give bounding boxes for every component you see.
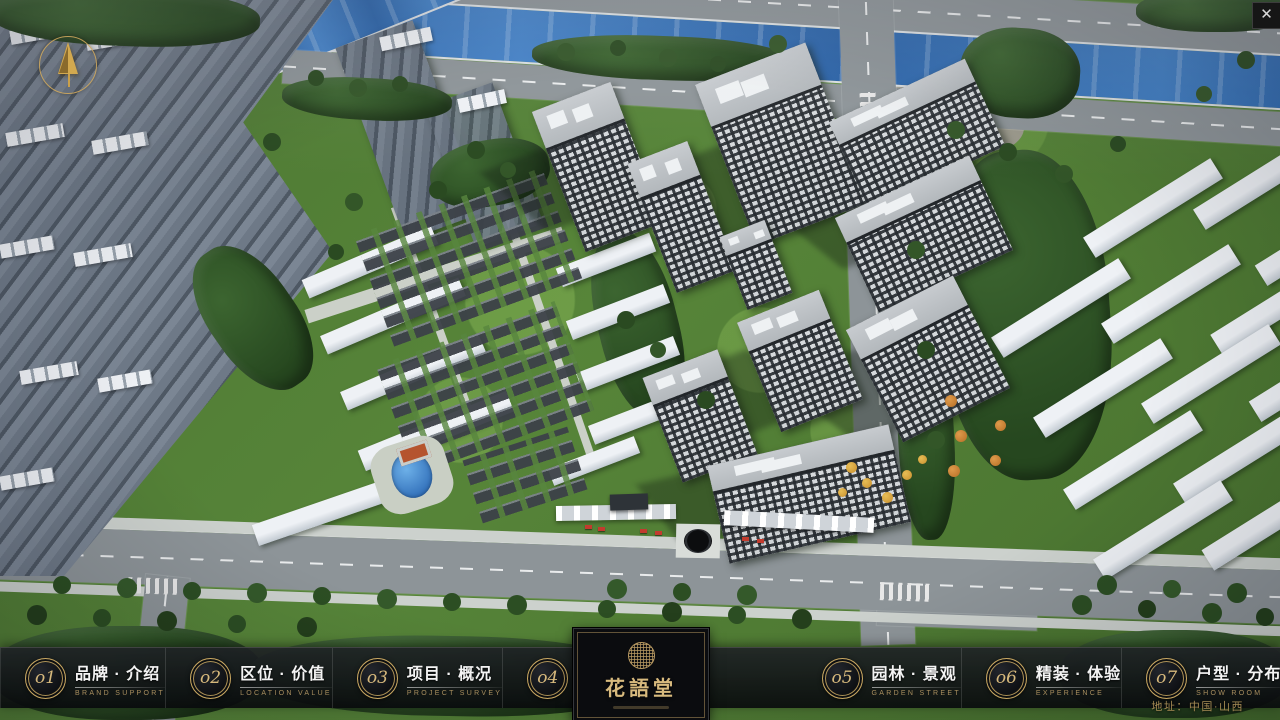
- brand-title: 花語堂: [605, 672, 677, 701]
- nav-number-badge: o6: [986, 658, 1027, 699]
- nav-label-zh: 园林 · 景观: [872, 660, 957, 684]
- nav-label-zh: 区位 · 价值: [240, 660, 325, 684]
- project-address: 地址：中国·山西: [1151, 698, 1244, 714]
- close-button[interactable]: ✕: [1252, 2, 1280, 29]
- nav-label-zh: 品牌 · 介绍: [75, 660, 160, 684]
- nav-item-project[interactable]: o3 项目 · 概况 PROJECT SURVEY: [333, 648, 503, 708]
- nav-label-en: EXPERIENCE: [1036, 690, 1104, 697]
- nav-item-interior[interactable]: o6 精装 · 体验 EXPERIENCE: [962, 648, 1122, 708]
- nav-number-badge: o7: [1146, 658, 1187, 699]
- nav-label-zh: 项目 · 概况: [407, 660, 492, 684]
- nav-number-badge: o4: [527, 658, 568, 699]
- entrance-emblem: [684, 529, 712, 553]
- nav-label-en: PROJECT SURVEY: [407, 690, 502, 697]
- nav-number-badge: o1: [25, 658, 66, 699]
- scatter-trees: [0, 0, 12, 12]
- chinese-gate: [610, 493, 649, 510]
- nav-item-brand[interactable]: o1 品牌 · 介绍 BRAND SUPPORT: [0, 648, 166, 708]
- nav-item-location[interactable]: o2 区位 · 价值 LOCATION VALUE: [166, 648, 333, 708]
- nav-label-en: BRAND SUPPORT: [75, 690, 165, 697]
- brand-subtitle-line: [613, 706, 669, 709]
- nav-label-zh: 精装 · 体验: [1036, 660, 1121, 684]
- nav-label-en: SHOW ROOM: [1196, 690, 1262, 697]
- site-plan-3d-view[interactable]: [0, 0, 1280, 720]
- nav-item-garden[interactable]: o5 园林 · 景观 GARDEN STREET: [798, 648, 962, 708]
- nav-label-zh: 户型 · 分布: [1196, 660, 1280, 684]
- compass-north-icon: [39, 36, 97, 94]
- nav-label-en: GARDEN STREET: [872, 690, 961, 697]
- brand-seal-icon: [628, 642, 655, 669]
- nav-number-badge: o5: [822, 658, 863, 699]
- nav-number-badge: o3: [357, 658, 398, 699]
- brand-logo-plaque[interactable]: 花語堂: [573, 628, 709, 720]
- nav-label-en: LOCATION VALUE: [240, 690, 332, 697]
- nav-number-badge: o2: [190, 658, 231, 699]
- presentation-window: ✕ o1 品牌 · 介绍 BRAND SUPPORT o2 区位 · 价值 LO…: [0, 0, 1280, 720]
